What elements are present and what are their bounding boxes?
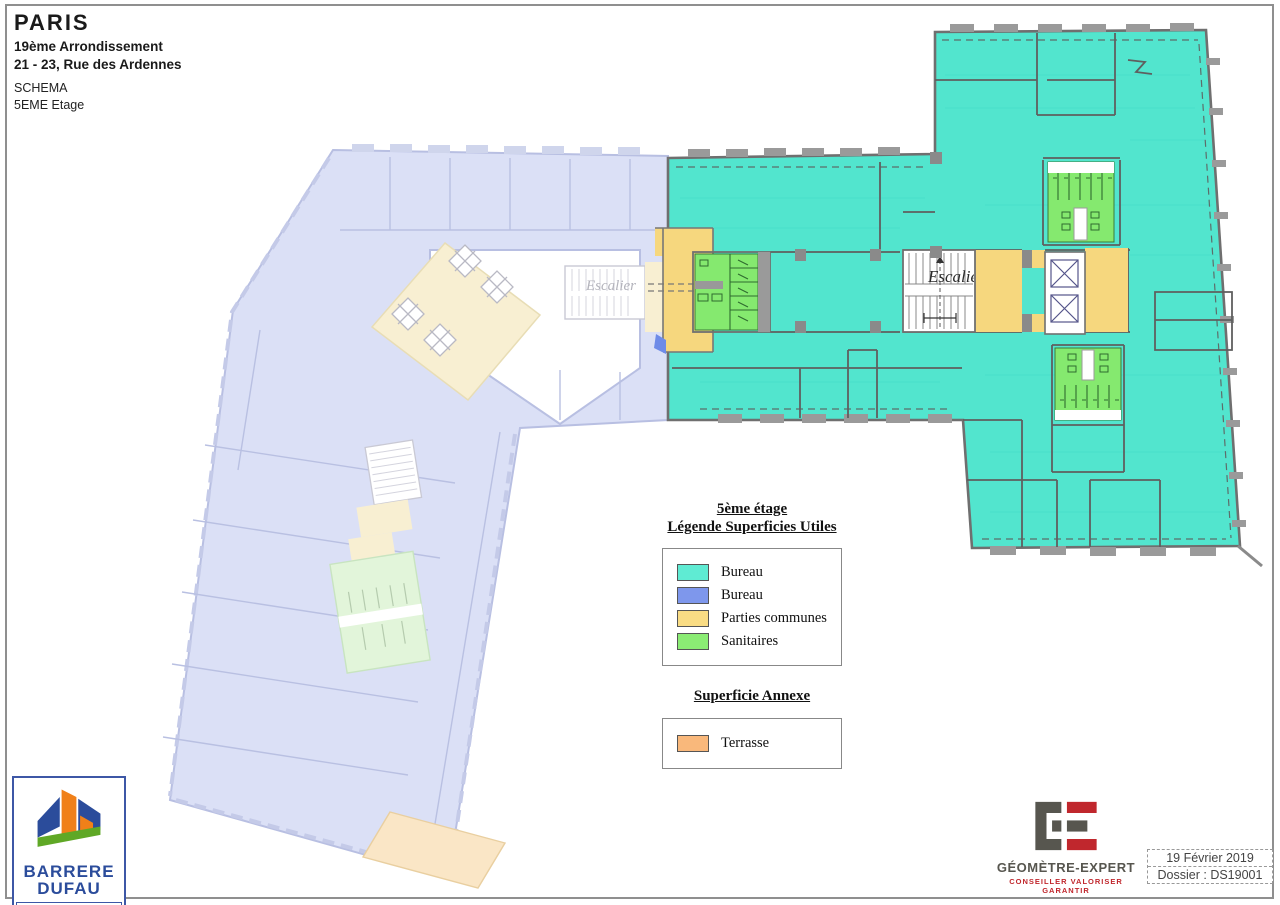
barrere-label: BARRERE bbox=[16, 863, 122, 880]
legend-item-terrasse: Terrasse bbox=[677, 735, 833, 752]
elevator-lobby bbox=[1045, 252, 1085, 334]
legend-item-parties-communes: Parties communes bbox=[677, 610, 833, 627]
legend: 5ème étage Légende Superficies Utiles Bu… bbox=[662, 500, 842, 769]
faded-wing-outline bbox=[170, 150, 668, 878]
stamp-box: 19 Février 2019 Dossier : DS19001 bbox=[1147, 849, 1273, 884]
legend-item-bureau-blue: Bureau bbox=[677, 587, 833, 604]
sanitaires-southeast bbox=[1055, 348, 1121, 420]
corner-tail bbox=[1238, 546, 1262, 566]
legend-item-sanitaires: Sanitaires bbox=[677, 633, 833, 650]
ge-monogram-icon bbox=[1033, 800, 1099, 852]
stamp-dossier: Dossier : DS19001 bbox=[1148, 867, 1272, 883]
legend-title-main: Légende Superficies Utiles bbox=[662, 518, 842, 536]
floor-plan: Escalier bbox=[0, 0, 1280, 905]
terrasse-swatch bbox=[677, 735, 709, 752]
barrere-dufau-building-icon bbox=[29, 784, 109, 858]
bureau-teal-swatch bbox=[677, 564, 709, 581]
sanitaires-northeast bbox=[1048, 162, 1114, 242]
ge-title: GÉOMÈTRE-EXPERT bbox=[996, 860, 1136, 875]
faded-terrasse bbox=[363, 812, 505, 888]
faded-staircase-west: Escalier bbox=[565, 266, 645, 319]
faded-west-wing: Escalier bbox=[163, 144, 668, 888]
sanitaires-west bbox=[693, 252, 770, 332]
annex-box: Terrasse bbox=[662, 718, 842, 769]
legend-box: Bureau Bureau Parties communes Sanitaire… bbox=[662, 548, 842, 666]
stair-label-west: Escalier bbox=[585, 278, 636, 294]
stamp-date: 19 Février 2019 bbox=[1148, 850, 1272, 867]
ge-subtitle: CONSEILLER VALORISER GARANTIR bbox=[996, 877, 1136, 895]
legend-title-floor: 5ème étage bbox=[662, 500, 842, 518]
sanitaires-swatch bbox=[677, 633, 709, 650]
staircase-central: Escalier bbox=[903, 250, 985, 332]
parties-communes-swatch bbox=[677, 610, 709, 627]
barrere-dufau-logo: BARRERE DUFAU Géomètres-Experts bbox=[12, 776, 126, 905]
plan-sheet: PARIS 19ème Arrondissement 21 - 23, Rue … bbox=[0, 0, 1280, 905]
dufau-label: DUFAU bbox=[16, 880, 122, 897]
annex-title: Superficie Annexe bbox=[662, 688, 842, 705]
active-east-wing: Escalier bbox=[648, 23, 1262, 566]
bureau-blue-swatch bbox=[677, 587, 709, 604]
geometre-expert-logo: GÉOMÈTRE-EXPERT CONSEILLER VALORISER GAR… bbox=[996, 800, 1136, 895]
legend-item-bureau-teal: Bureau bbox=[677, 564, 833, 581]
